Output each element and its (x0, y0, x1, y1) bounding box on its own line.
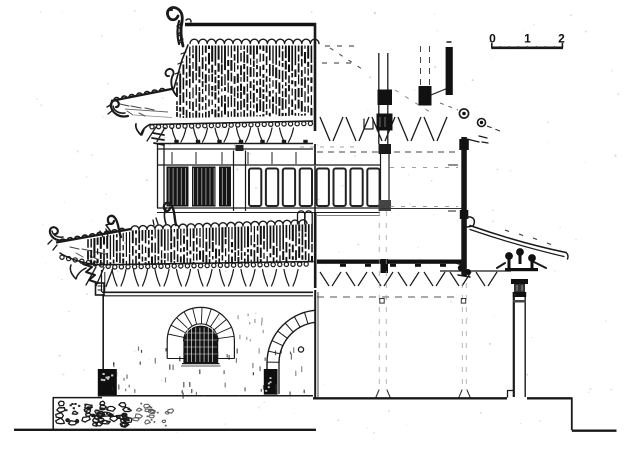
svg-text:1: 1 (524, 32, 531, 46)
svg-text:0: 0 (489, 32, 496, 46)
